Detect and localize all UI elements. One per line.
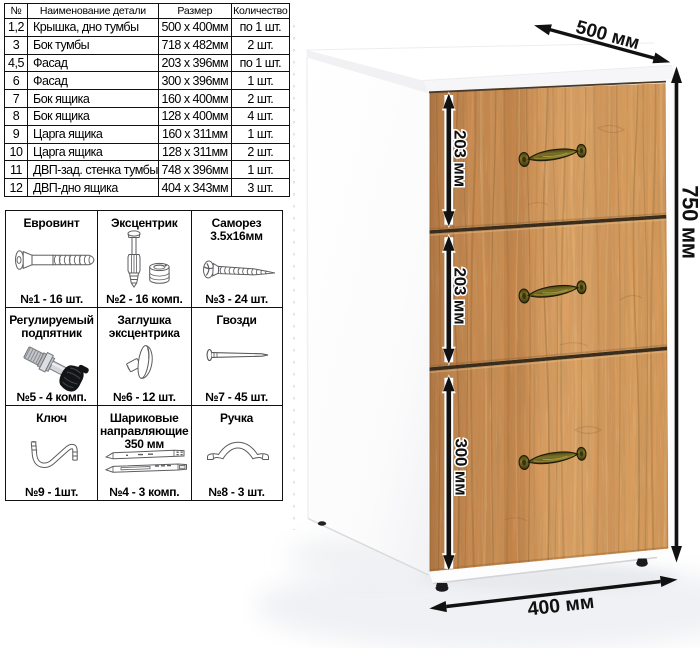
svg-text:300 мм: 300 мм (452, 438, 471, 495)
svg-text:203 мм: 203 мм (451, 267, 470, 324)
svg-text:203 мм: 203 мм (451, 130, 470, 187)
svg-text:750 мм: 750 мм (678, 185, 700, 259)
